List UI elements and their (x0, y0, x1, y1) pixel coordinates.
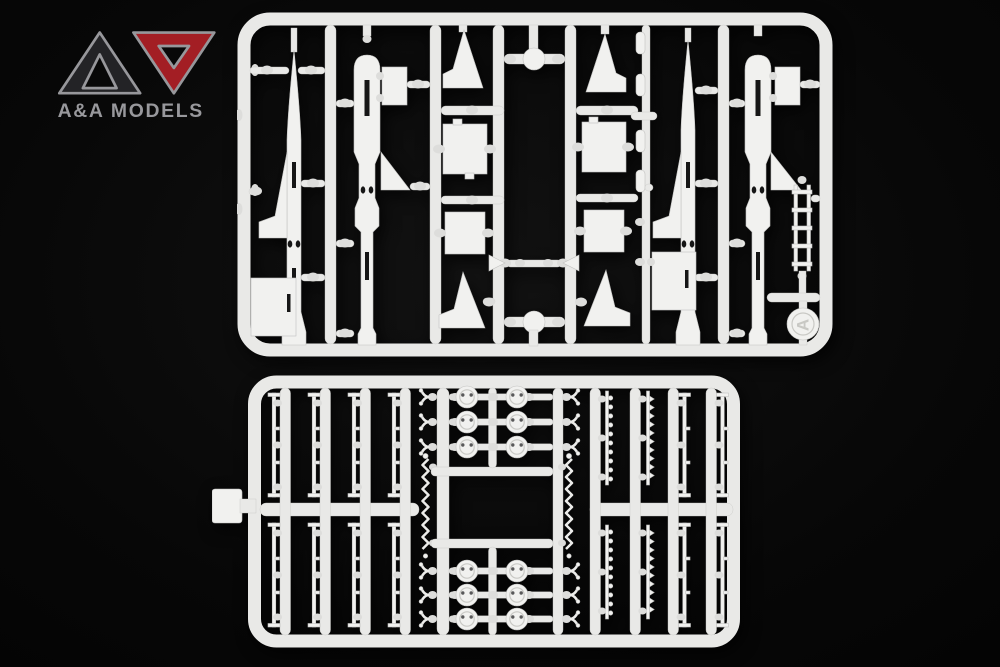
disc-hole (461, 567, 464, 570)
runner-vertical (400, 388, 411, 635)
rack-tooth (650, 405, 655, 411)
sprue-gate (677, 400, 686, 407)
sprue-gate (504, 55, 516, 64)
brand-name: A&A MODELS (58, 100, 204, 122)
sprue-gate (412, 80, 424, 89)
disc-hole (461, 615, 464, 618)
rod-end-bar (679, 624, 691, 628)
sprue-gate (677, 484, 686, 491)
bead (608, 414, 612, 418)
wheel-disc (506, 411, 528, 433)
disc-hole (520, 443, 523, 446)
sprue-gate (558, 464, 566, 471)
sprue-gate (376, 94, 384, 102)
rod-nub (686, 591, 691, 594)
sprue-gate (552, 318, 564, 327)
runner-vertical (565, 25, 576, 344)
sprue-gate (488, 615, 498, 623)
box-tab (465, 173, 474, 179)
sprue-gate (488, 443, 498, 451)
disc-hole (520, 418, 523, 421)
sprue-gate (434, 229, 446, 238)
fork-tip (576, 611, 580, 615)
rod-end-bar (308, 393, 320, 397)
runner-vertical-wide (437, 388, 449, 635)
clevis-fork (419, 439, 437, 456)
top-gate (363, 25, 371, 36)
disc-hole (511, 615, 514, 618)
bead (608, 477, 612, 481)
cylindrical-fitting (636, 170, 645, 192)
clevis-fork (562, 414, 580, 431)
top-gate (685, 28, 691, 42)
clipped-delta-fin (381, 152, 410, 190)
rod-nub (275, 461, 280, 464)
sprue-gate (562, 567, 571, 575)
flat-panel (652, 252, 696, 310)
runner-bar (645, 184, 653, 191)
sprue-gate (393, 614, 402, 621)
disc-hole (461, 418, 464, 421)
sprue-gate (804, 80, 816, 89)
fork-tip (419, 439, 423, 443)
sprue-gate (428, 591, 437, 599)
sprue-gate (598, 396, 606, 403)
rod-nub (355, 591, 360, 594)
brand-logo-mark: A&A MODELS (34, 14, 216, 124)
rod-nub (355, 557, 360, 560)
rod-end-bar (348, 393, 360, 397)
flat-panel (775, 67, 800, 105)
rack-tooth (650, 422, 655, 428)
runner-bar (767, 293, 820, 302)
sprue-gate (428, 393, 437, 401)
fork-tip (576, 389, 580, 393)
vent-hole (760, 186, 765, 193)
fork-tip (419, 563, 423, 567)
rod-end-bar (308, 624, 320, 628)
sprue-gate (715, 572, 724, 579)
vent-hole (752, 186, 757, 193)
bead (608, 396, 612, 400)
rod-end-bar (308, 494, 320, 498)
panel-slot (685, 270, 689, 288)
bead (608, 468, 612, 472)
wedge-fin (586, 34, 626, 92)
fork-tip (576, 563, 580, 567)
rack-tooth (650, 547, 655, 553)
sprue-frame-a: A (237, 12, 833, 357)
rod-end-bar (717, 624, 729, 628)
sprue-gate (598, 608, 606, 615)
fork-tip (576, 414, 580, 418)
sprue-gate (414, 182, 426, 191)
cylindrical-fitting (636, 32, 645, 54)
rod-end-bar (679, 523, 691, 527)
sprue-gate (428, 418, 437, 426)
bead (608, 584, 612, 588)
sprue-gate (393, 530, 402, 537)
cluster-bar (431, 467, 553, 476)
zigzag-strip (566, 453, 572, 558)
sprue-gate (598, 474, 606, 481)
sprue-gate (307, 179, 319, 188)
rod-shaft (647, 391, 650, 485)
sprue-gate (601, 106, 613, 115)
rod-nub (724, 461, 729, 464)
bead (608, 423, 612, 427)
sprue-gate (700, 179, 712, 188)
fork-tip (419, 414, 423, 418)
zigzag-hook (567, 554, 571, 558)
rod-nub (724, 557, 729, 560)
rod-end-bar (268, 523, 280, 527)
rack-tooth (650, 539, 655, 545)
clevis-fork (419, 563, 437, 580)
fork-tip (419, 576, 423, 580)
rod-nub (275, 591, 280, 594)
rod-end-bar (268, 624, 280, 628)
clevis-fork (419, 587, 437, 604)
sprue-gate (731, 99, 743, 108)
fork-tip (576, 439, 580, 443)
fork-tip (419, 624, 423, 628)
fork-tip (419, 427, 423, 431)
sprue-gate (677, 442, 686, 449)
sprue-gate (488, 591, 498, 599)
clipped-delta-fin (439, 272, 485, 328)
zigzag-body (423, 459, 429, 549)
sprue-gate (798, 176, 807, 184)
sprue-gate (428, 443, 437, 451)
rod-nub (275, 557, 280, 560)
cluster-bar (431, 539, 553, 548)
rack-tooth (650, 598, 655, 604)
runner-vertical (493, 25, 504, 344)
rod-end-bar (348, 624, 360, 628)
sprue-gate (428, 567, 437, 575)
zigzag-hook (566, 453, 571, 458)
sprue-gate (715, 614, 724, 621)
sprue-gate (393, 484, 402, 491)
bead (608, 557, 612, 561)
equipment-box (445, 212, 485, 254)
runner-stub (529, 330, 538, 346)
runner-vertical (590, 388, 601, 635)
bead (608, 432, 612, 436)
sprue-gate (562, 443, 571, 451)
sprue-gate (250, 187, 262, 196)
sprue-gate (515, 259, 525, 267)
vent-hole (369, 186, 374, 193)
sprue-gate (622, 143, 634, 152)
wheel-disc (506, 386, 528, 408)
clevis-fork (562, 389, 580, 406)
sprue-gate (353, 614, 362, 621)
sprue-gate (273, 484, 282, 491)
rack-tooth (650, 564, 655, 570)
clevis-fork (419, 611, 437, 628)
fork-tip (419, 600, 423, 604)
rod-nub (315, 557, 320, 560)
rod-end-bar (679, 393, 691, 397)
rack-tooth (650, 430, 655, 436)
top-gate (459, 25, 467, 32)
wedge-fin (443, 30, 483, 88)
wheel-disc (506, 560, 528, 582)
disc-hole (511, 418, 514, 421)
disc-hole (511, 393, 514, 396)
sprue-gate (638, 474, 646, 481)
rack-tooth (650, 473, 655, 479)
sprue-gate (769, 94, 777, 102)
bead (608, 566, 612, 570)
fork-tip (576, 587, 580, 591)
sprue-gate (484, 145, 496, 154)
sprue-gate (339, 99, 351, 108)
rod-nub (724, 427, 729, 430)
photo-stage: A&A MODELS A (0, 0, 1000, 667)
rod-nub (315, 591, 320, 594)
sprue-gate (562, 591, 571, 599)
rod-end-bar (388, 523, 400, 527)
equipment-box (584, 210, 624, 252)
locating-slot (686, 162, 690, 188)
bead (608, 548, 612, 552)
fork-tip (419, 452, 423, 456)
bead (608, 593, 612, 597)
rack-tooth (650, 581, 655, 587)
disc-hole (511, 567, 514, 570)
runner-vertical (706, 388, 717, 635)
sprue-gate (313, 572, 322, 579)
sprue-gate (482, 229, 494, 238)
bead (608, 450, 612, 454)
rod-nub (355, 427, 360, 430)
rod-nub (395, 427, 400, 430)
rack-tooth (650, 464, 655, 470)
sprue-gate (638, 435, 646, 442)
disc-hole (461, 591, 464, 594)
top-gate (291, 28, 297, 52)
fork-tip (419, 611, 423, 615)
runner-vertical (430, 25, 441, 344)
sprue-gate (562, 615, 571, 623)
rod-end-bar (268, 393, 280, 397)
fork-tip (576, 452, 580, 456)
sprue-gate (353, 484, 362, 491)
disc-hole (511, 591, 514, 594)
rod-nub (686, 461, 691, 464)
rack-tooth (650, 413, 655, 419)
rod-nub (724, 591, 729, 594)
ladder-rung (792, 208, 812, 212)
disc-hole (470, 443, 473, 446)
locating-slot (292, 162, 296, 188)
sprue-frame-b (212, 375, 743, 648)
rack-tooth (650, 456, 655, 462)
bead (608, 539, 612, 543)
runner-vertical (325, 25, 336, 344)
sprue-gate (638, 608, 646, 615)
sprue-gate (273, 400, 282, 407)
sprue-gate (677, 614, 686, 621)
cylindrical-fitting (636, 74, 645, 96)
fork-tip (576, 624, 580, 628)
sprue-gate (715, 484, 724, 491)
sprue-gate (488, 418, 498, 426)
box-tab (589, 117, 598, 123)
wheel-disc (506, 608, 528, 630)
runner-bar (811, 195, 820, 202)
sprue-gate (376, 72, 384, 80)
disc-hole (520, 393, 523, 396)
brand-logo: A&A MODELS (34, 14, 216, 129)
sprue-gate (731, 329, 743, 338)
sprue-gate (552, 55, 564, 64)
sprue-gate (715, 530, 724, 537)
round-disc (523, 48, 545, 70)
rack-tooth (650, 573, 655, 579)
locating-slot (756, 252, 760, 280)
runner-vertical (280, 388, 291, 635)
sprue-gate (433, 145, 445, 154)
round-disc (523, 311, 545, 333)
vent-hole (361, 186, 366, 193)
sprue-gate (700, 273, 712, 282)
vent-hole (682, 240, 687, 247)
sprue-gate (731, 239, 743, 248)
runner-vertical (718, 25, 729, 344)
rod-end-bar (679, 494, 691, 498)
rod-nub (395, 591, 400, 594)
equipment-box (582, 122, 626, 172)
rod-end-bar (717, 393, 729, 397)
rod-end-bar (348, 523, 360, 527)
top-gate (601, 25, 609, 34)
fork-tip (576, 600, 580, 604)
vent-hole (288, 240, 293, 247)
bead (608, 575, 612, 579)
sprue-gate (488, 567, 498, 575)
sprue-gate (466, 106, 478, 115)
sprue-gate (638, 569, 646, 576)
sprue-gate (562, 393, 571, 401)
rod-nub (686, 557, 691, 560)
clipped-delta-fin (584, 270, 630, 326)
rod-nub (395, 461, 400, 464)
sprue-gate (273, 572, 282, 579)
rod-nub (275, 427, 280, 430)
sprue-gate (638, 396, 646, 403)
disc-hole (470, 418, 473, 421)
sprue-gate (635, 258, 645, 266)
rod-end-bar (388, 624, 400, 628)
sprue-gate (273, 442, 282, 449)
rack-tooth (650, 607, 655, 613)
beaded-rod (606, 525, 613, 619)
sprue-gate (393, 442, 402, 449)
sprue-gate (393, 572, 402, 579)
rod-nub (315, 461, 320, 464)
sprue-gate (466, 196, 478, 205)
panel-slot (287, 294, 291, 312)
sprue-gate (635, 218, 645, 226)
box-tab (453, 119, 462, 125)
zigzag-body (566, 459, 572, 549)
wheel-disc (456, 560, 478, 582)
sprue-gate (769, 72, 777, 80)
runner-vertical (668, 388, 679, 635)
sprue-gate (677, 572, 686, 579)
bead (608, 459, 612, 463)
disc-hole (520, 591, 523, 594)
wheel-disc (506, 436, 528, 458)
rod-end-bar (717, 494, 729, 498)
clevis-fork (562, 439, 580, 456)
rack-strip (647, 525, 655, 619)
disc-hole (470, 591, 473, 594)
rod-end-bar (388, 393, 400, 397)
rod-end-bar (388, 494, 400, 498)
sprue-gate (504, 318, 516, 327)
wheel-disc (456, 411, 478, 433)
zigzag-hook (423, 453, 428, 458)
runner-vertical (553, 388, 563, 635)
locating-slot (365, 80, 370, 116)
sprue-gate (339, 239, 351, 248)
sprue-gate (558, 540, 566, 547)
disc-hole (461, 393, 464, 396)
sprue-gate (273, 614, 282, 621)
fork-tip (419, 587, 423, 591)
sprue-gate (313, 442, 322, 449)
sprue-gate (598, 435, 606, 442)
side-tab (212, 489, 242, 523)
runner-vertical (630, 388, 641, 635)
sprue-gate (620, 227, 632, 236)
rod-end-bar (348, 494, 360, 498)
zigzag-hook (423, 554, 427, 558)
sprue-gate (598, 530, 606, 537)
brand-mark-right-icon (133, 33, 214, 94)
sprue-gate (715, 442, 724, 449)
sprue-gate (543, 259, 553, 267)
vent-hole (296, 240, 301, 247)
disc-hole (520, 567, 523, 570)
fork-tip (576, 427, 580, 431)
sprue-gate (393, 400, 402, 407)
sprue-gate (273, 530, 282, 537)
clevis-fork (419, 414, 437, 431)
fork-tip (419, 389, 423, 393)
runner-bar (631, 112, 657, 120)
vent-hole (690, 240, 695, 247)
sprue-gate (313, 614, 322, 621)
disc-hole (470, 567, 473, 570)
sprue-gate (353, 442, 362, 449)
rack-strip (647, 391, 655, 485)
ladder-rung (792, 262, 812, 266)
launch-rail-ladder (792, 185, 812, 271)
ladder-rung (792, 226, 812, 230)
sprue-gate (353, 400, 362, 407)
sprue-gate (575, 298, 587, 307)
sprue-gate (339, 329, 351, 338)
rod-nub (686, 427, 691, 430)
sprue-gate (647, 258, 655, 266)
rod-nub (355, 461, 360, 464)
